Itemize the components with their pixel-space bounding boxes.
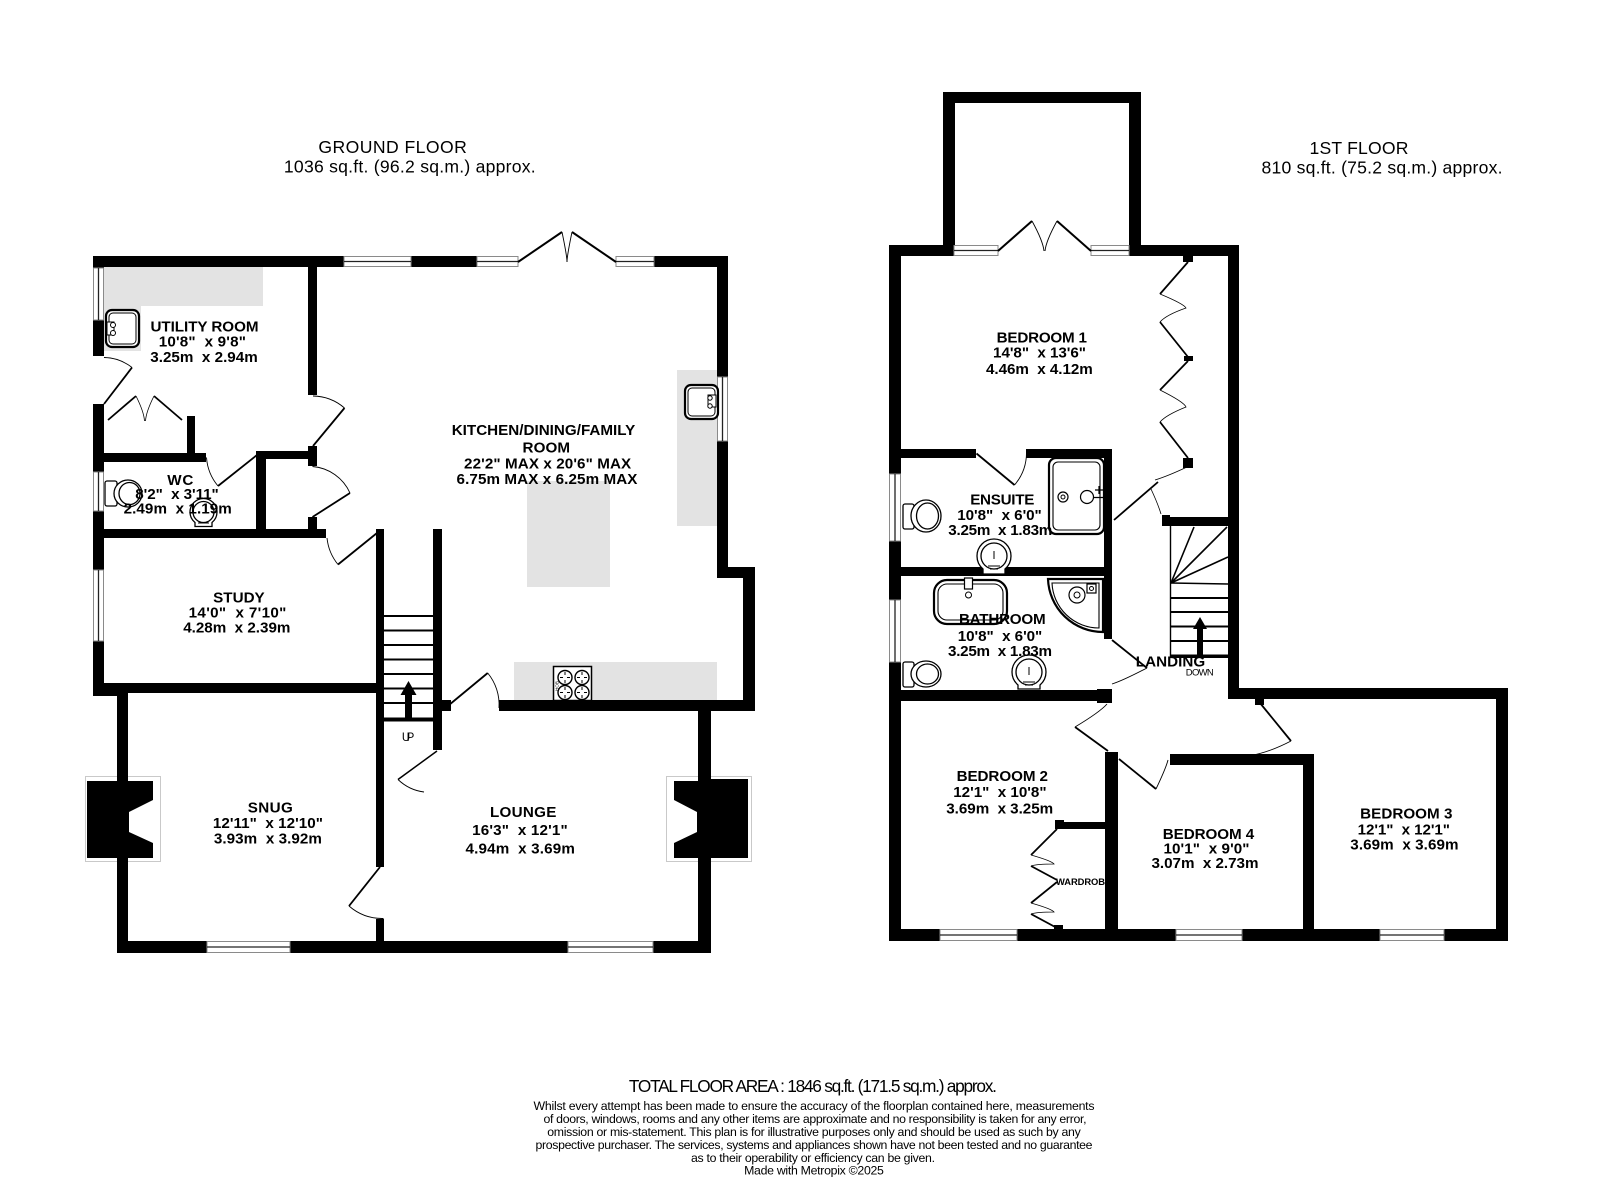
svg-text:3.69m x 3.69m: 3.69m x 3.69m — [1350, 836, 1458, 853]
svg-text:Made with Metropix ©2025: Made with Metropix ©2025 — [744, 1164, 884, 1178]
svg-text:810 sq.ft. (75.2 sq.m.) approx: 810 sq.ft. (75.2 sq.m.) approx. — [1262, 157, 1503, 177]
svg-text:14'8" x 13'6": 14'8" x 13'6" — [993, 345, 1086, 362]
svg-text:4.28m x 2.39m: 4.28m x 2.39m — [183, 619, 290, 636]
svg-text:GROUND FLOOR: GROUND FLOOR — [318, 137, 466, 157]
svg-text:1ST FLOOR: 1ST FLOOR — [1310, 138, 1409, 158]
svg-text:omission or mis-statement. Thi: omission or mis-statement. This plan is … — [547, 1125, 1081, 1139]
svg-text:BEDROOM 3: BEDROOM 3 — [1360, 805, 1452, 822]
svg-text:HOB: HOB — [555, 681, 560, 691]
svg-text:DOWN: DOWN — [1186, 668, 1214, 679]
svg-text:of doors, windows, rooms and a: of doors, windows, rooms and any other i… — [544, 1112, 1087, 1126]
svg-text:KITCHEN/DINING/FAMILY: KITCHEN/DINING/FAMILY — [452, 422, 636, 439]
svg-text:3.25m x 1.83m: 3.25m x 1.83m — [948, 643, 1052, 660]
svg-text:12'1" x 10'8": 12'1" x 10'8" — [953, 784, 1046, 801]
svg-text:3.07m x 2.73m: 3.07m x 2.73m — [1152, 855, 1259, 872]
svg-text:3.25m x 2.94m: 3.25m x 2.94m — [150, 349, 258, 366]
svg-text:3.93m x 3.92m: 3.93m x 3.92m — [214, 830, 322, 847]
svg-text:BEDROOM 2: BEDROOM 2 — [957, 768, 1048, 785]
svg-text:SNUG: SNUG — [248, 800, 293, 817]
svg-text:ROOM: ROOM — [523, 440, 571, 457]
svg-text:Whilst every attempt has been: Whilst every attempt has been made to en… — [534, 1099, 1095, 1113]
svg-text:UP: UP — [402, 732, 415, 744]
svg-text:TOTAL FLOOR AREA : 1846 sq.ft.: TOTAL FLOOR AREA : 1846 sq.ft. (171.5 sq… — [629, 1076, 997, 1096]
svg-text:3.69m x 3.25m: 3.69m x 3.25m — [946, 801, 1053, 818]
svg-text:16'3" x 12'1": 16'3" x 12'1" — [472, 822, 568, 839]
svg-text:prospective purchaser. The ser: prospective purchaser. The services, sys… — [536, 1138, 1093, 1152]
svg-text:10'8" x 9'8": 10'8" x 9'8" — [159, 333, 246, 350]
svg-text:4.46m x 4.12m: 4.46m x 4.12m — [986, 361, 1093, 378]
svg-text:4.94m x 3.69m: 4.94m x 3.69m — [466, 841, 575, 858]
svg-text:WARDROB: WARDROB — [1056, 876, 1105, 887]
svg-text:ENSUITE: ENSUITE — [970, 491, 1034, 508]
svg-text:LOUNGE: LOUNGE — [490, 804, 557, 821]
svg-text:BATHROOM: BATHROOM — [959, 611, 1046, 628]
svg-text:2.49m x 1.19m: 2.49m x 1.19m — [124, 501, 232, 518]
svg-text:6.75m MAX x 6.25m MAX: 6.75m MAX x 6.25m MAX — [457, 471, 638, 488]
svg-text:1036 sq.ft. (96.2 sq.m.) appro: 1036 sq.ft. (96.2 sq.m.) approx. — [284, 157, 536, 177]
svg-text:3.25m x 1.83m: 3.25m x 1.83m — [948, 522, 1052, 539]
